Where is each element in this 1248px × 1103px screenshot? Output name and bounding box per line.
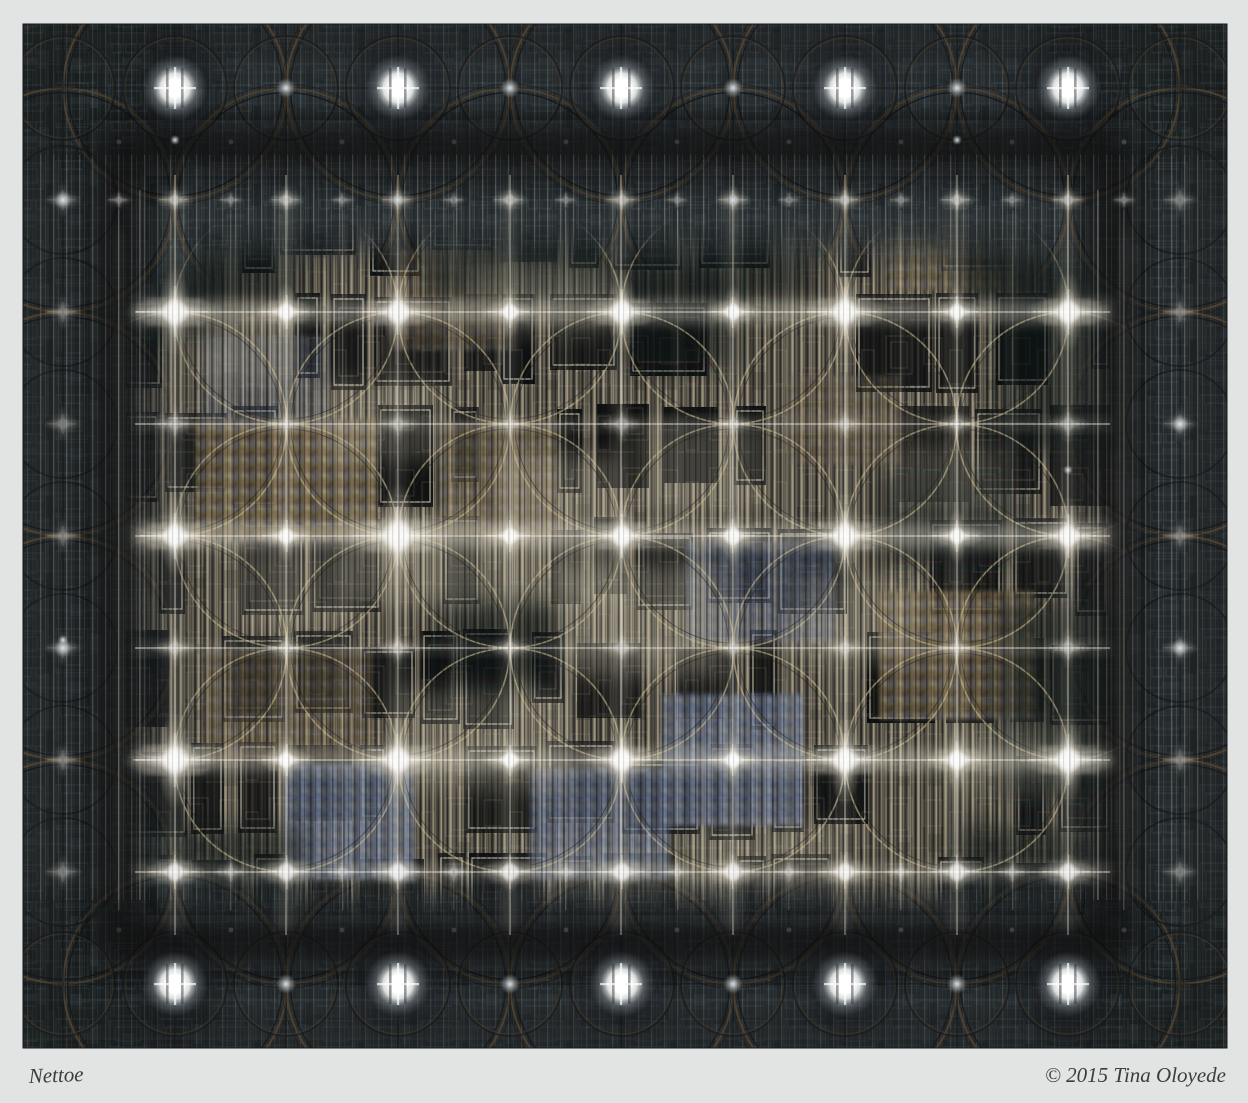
svg-text:© 2015 Tina Oloyede: © 2015 Tina Oloyede [1045,1063,1226,1087]
svg-text:Nettoe: Nettoe [27,1062,84,1088]
